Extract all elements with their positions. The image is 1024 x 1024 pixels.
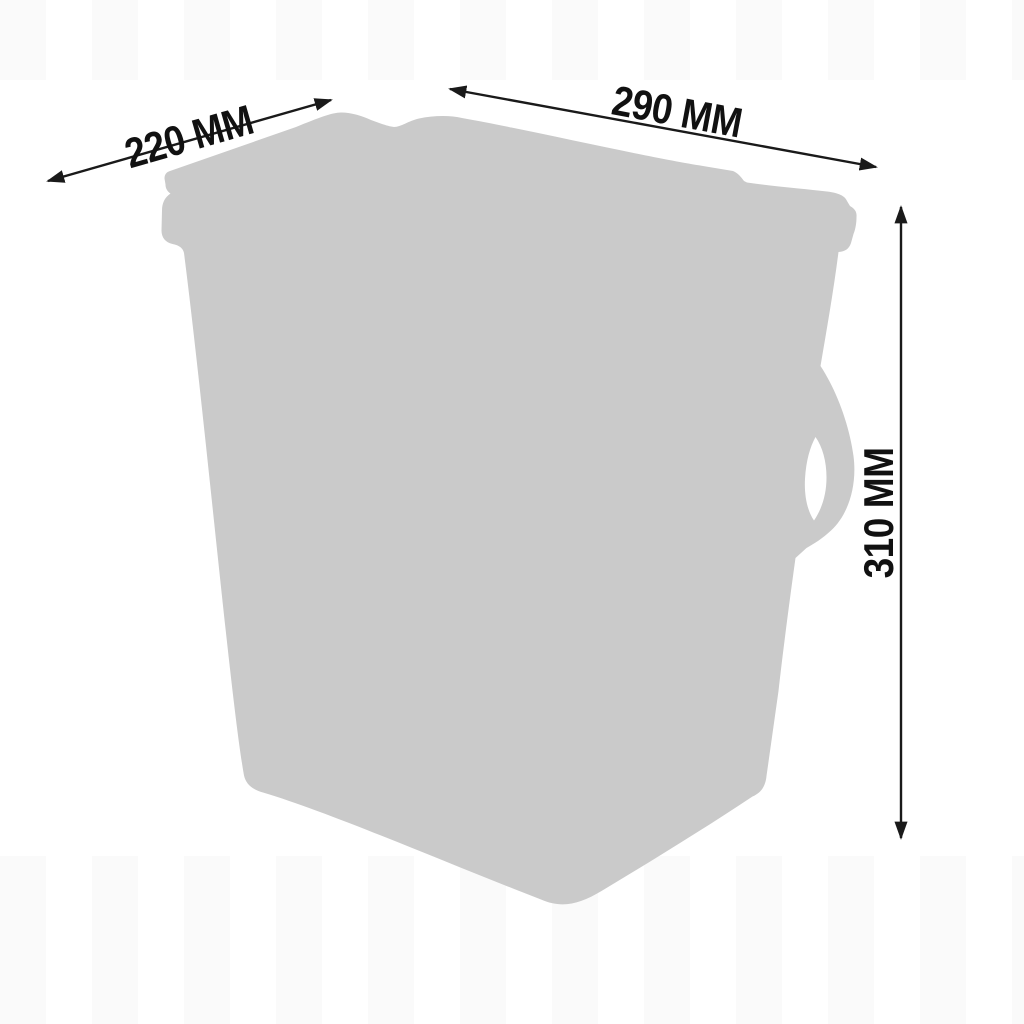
height-dimension-label: 310 MM (855, 448, 903, 579)
container-silhouette (162, 113, 857, 905)
product-dimension-diagram: 220 MM 290 MM 310 MM (0, 0, 1024, 1024)
